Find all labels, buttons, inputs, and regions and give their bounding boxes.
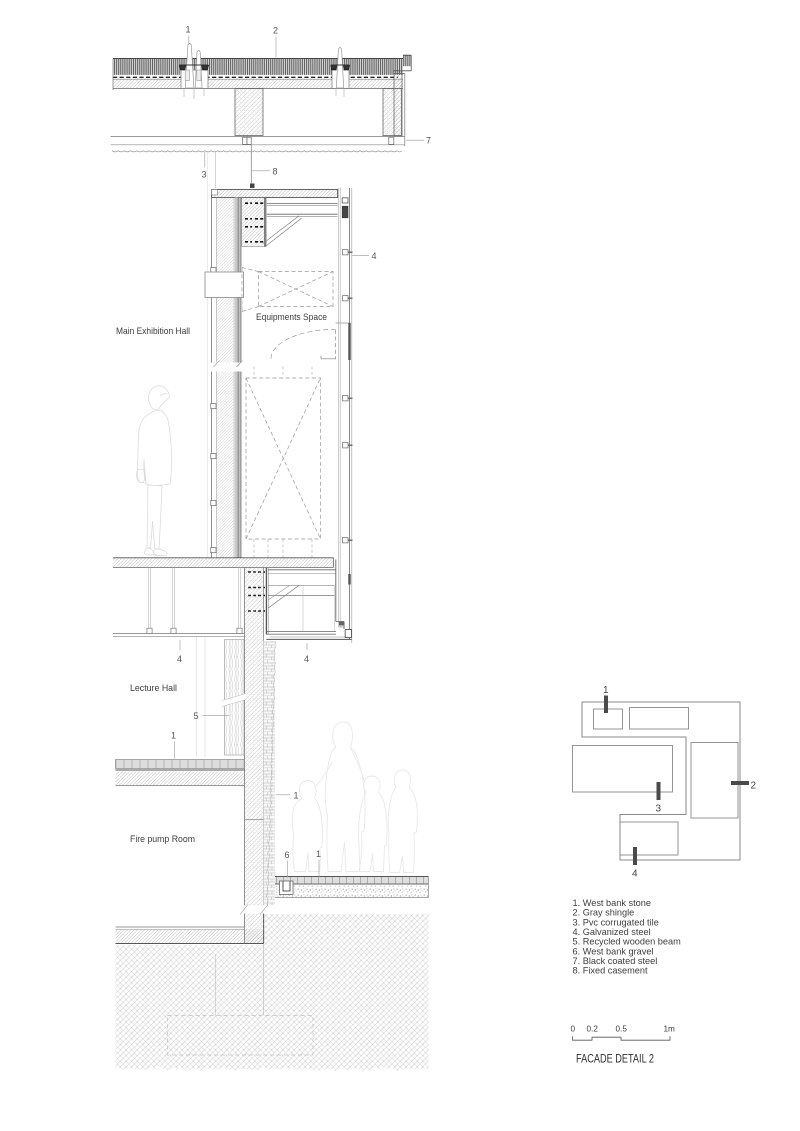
svg-text:4: 4 [304, 654, 309, 664]
svg-text:7. Black coated steel: 7. Black coated steel [573, 956, 658, 966]
svg-text:6. West bank gravel: 6. West bank gravel [573, 946, 654, 956]
svg-text:2: 2 [273, 26, 278, 36]
svg-text:Equipments Space: Equipments Space [256, 312, 327, 322]
svg-text:0: 0 [571, 1025, 576, 1034]
svg-text:4: 4 [177, 654, 182, 664]
svg-text:1: 1 [316, 849, 321, 859]
svg-text:Main Exhibition Hall: Main Exhibition Hall [116, 326, 190, 336]
svg-text:7: 7 [426, 136, 431, 146]
svg-text:3: 3 [656, 804, 662, 815]
svg-text:Fire pump Room: Fire pump Room [130, 834, 195, 844]
svg-text:8: 8 [273, 167, 278, 177]
svg-text:1m: 1m [664, 1025, 676, 1034]
svg-text:3. Pvc corrugated tile: 3. Pvc corrugated tile [573, 917, 659, 927]
svg-text:1: 1 [294, 791, 299, 801]
svg-text:5: 5 [194, 711, 199, 721]
svg-text:6: 6 [285, 850, 290, 860]
svg-text:4: 4 [372, 251, 377, 261]
svg-text:4: 4 [632, 869, 638, 880]
svg-text:5. Recycled wooden beam: 5. Recycled wooden beam [573, 937, 682, 947]
svg-text:3: 3 [202, 170, 207, 180]
svg-text:2: 2 [751, 781, 757, 792]
svg-text:1: 1 [603, 685, 609, 696]
svg-text:0.5: 0.5 [616, 1025, 628, 1034]
svg-text:8. Fixed casement: 8. Fixed casement [573, 966, 649, 976]
svg-text:Lecture Hall: Lecture Hall [130, 683, 177, 693]
svg-text:2. Gray shingle: 2. Gray shingle [573, 908, 635, 918]
svg-text:FACADE DETAIL 2: FACADE DETAIL 2 [576, 1054, 654, 1066]
svg-text:4. Galvanized steel: 4. Galvanized steel [573, 927, 651, 937]
svg-text:1: 1 [171, 731, 176, 741]
svg-text:1: 1 [186, 25, 191, 35]
svg-text:1. West bank stone: 1. West bank stone [573, 898, 651, 908]
svg-text:0.2: 0.2 [587, 1025, 599, 1034]
